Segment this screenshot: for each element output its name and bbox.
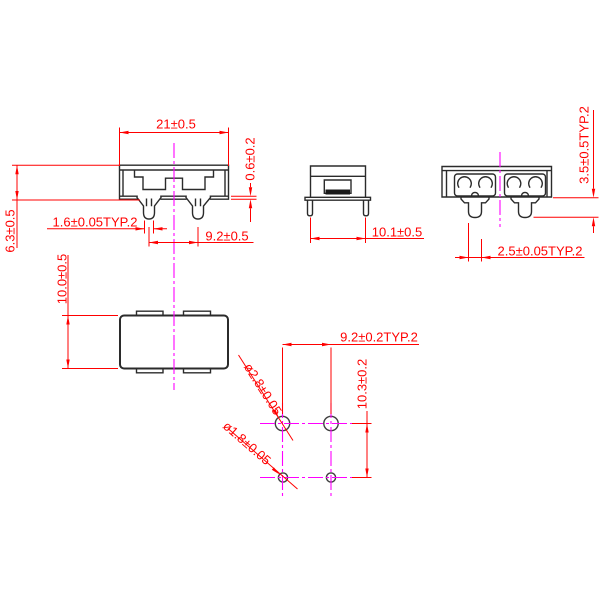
dim-pin-thickness: 2.5±0.05TYP.2	[498, 244, 583, 257]
end-view-part	[442, 167, 552, 218]
dim-side-depth: 10.1±0.5	[372, 226, 423, 239]
dimension-arrowheads	[15, 131, 595, 478]
dim-pin-protrusion: 3.5±0.5TYP.2	[578, 106, 591, 184]
dim-top-depth: 10.0±0.5	[56, 254, 69, 305]
dim-pin-width: 1.6±0.05TYP.2	[53, 215, 138, 228]
dim-hole-pitch-y: 10.3±0.2	[355, 358, 368, 409]
dim-hole-pitch-x: 9.2±0.2TYP.2	[340, 331, 418, 344]
dim-body-height: 6.3±0.5	[4, 209, 17, 252]
drawing-linework	[0, 0, 600, 600]
dim-body-width: 21±0.5	[156, 118, 196, 131]
dim-pin-pitch: 9.2±0.5	[205, 230, 248, 243]
pcb-hole-pattern	[275, 416, 338, 482]
technical-drawing-canvas: 21±0.5 0.6±0.2 6.3±0.5 1.6±0.05TYP.2 9.2…	[0, 0, 600, 600]
side-view-part	[305, 166, 371, 216]
dim-base-thickness: 0.6±0.2	[244, 137, 257, 180]
